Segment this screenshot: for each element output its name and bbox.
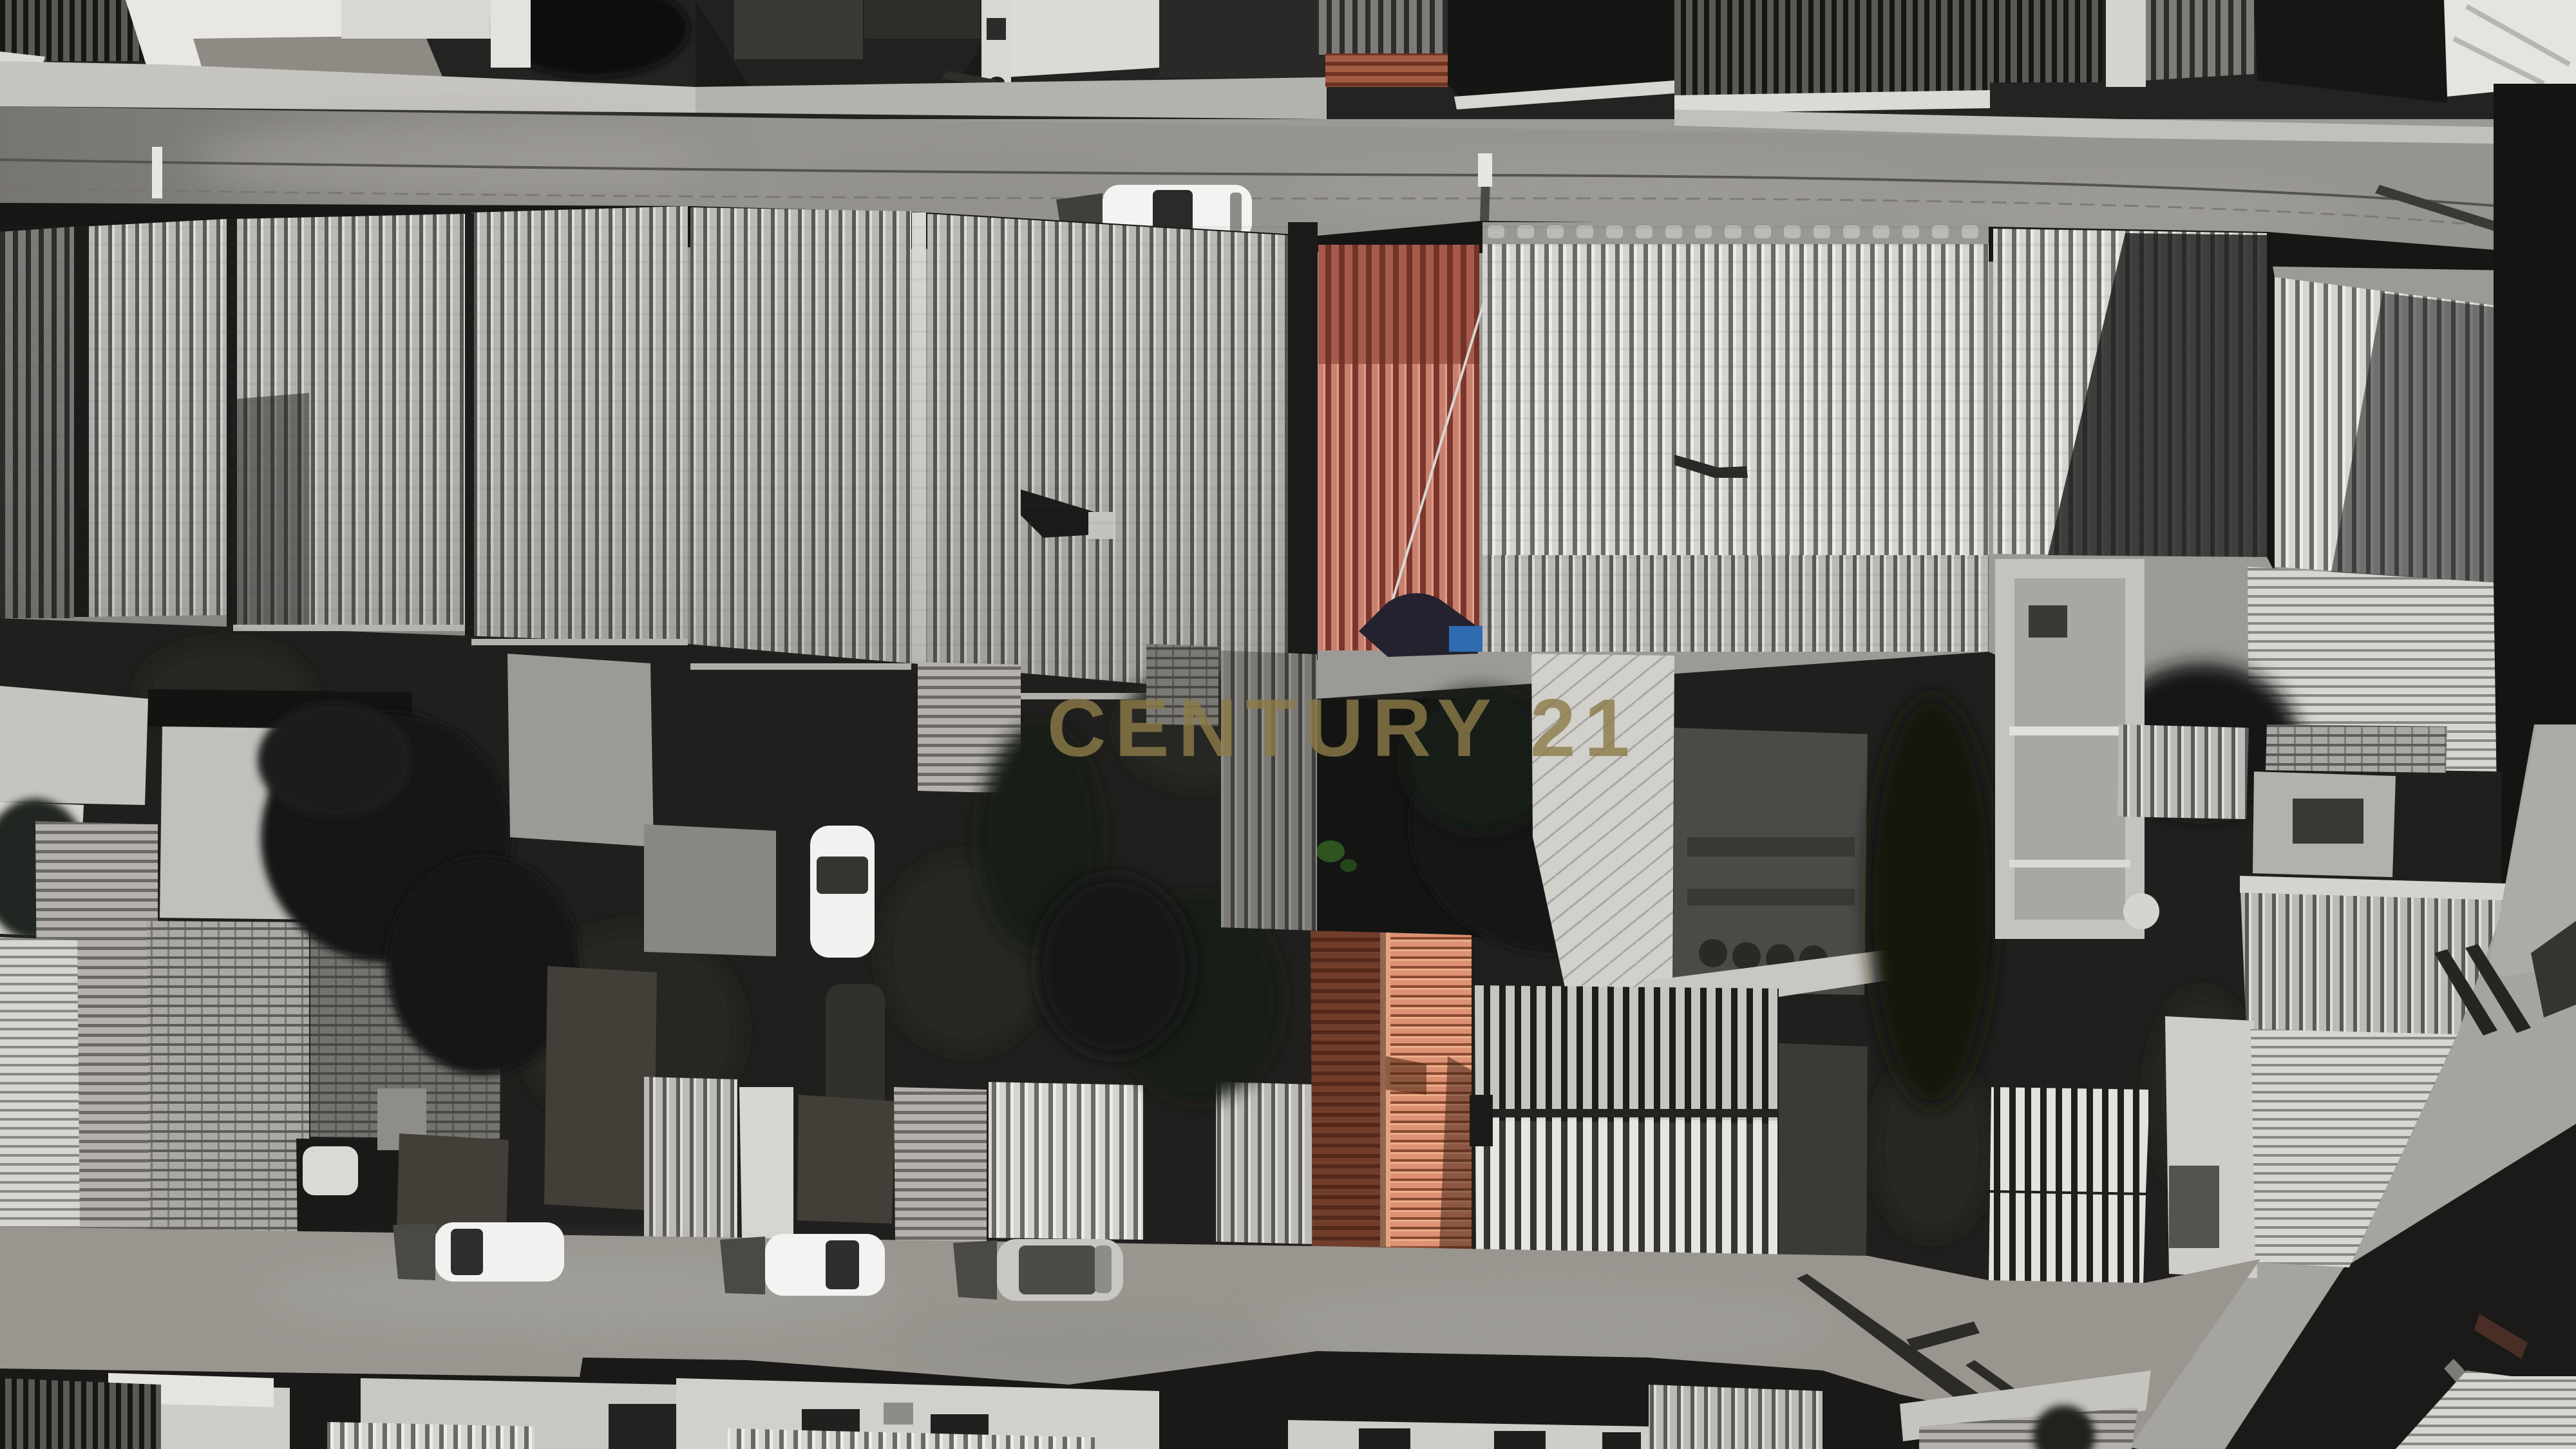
- svg-text:CENTURY 21: CENTURY 21: [1047, 682, 1638, 773]
